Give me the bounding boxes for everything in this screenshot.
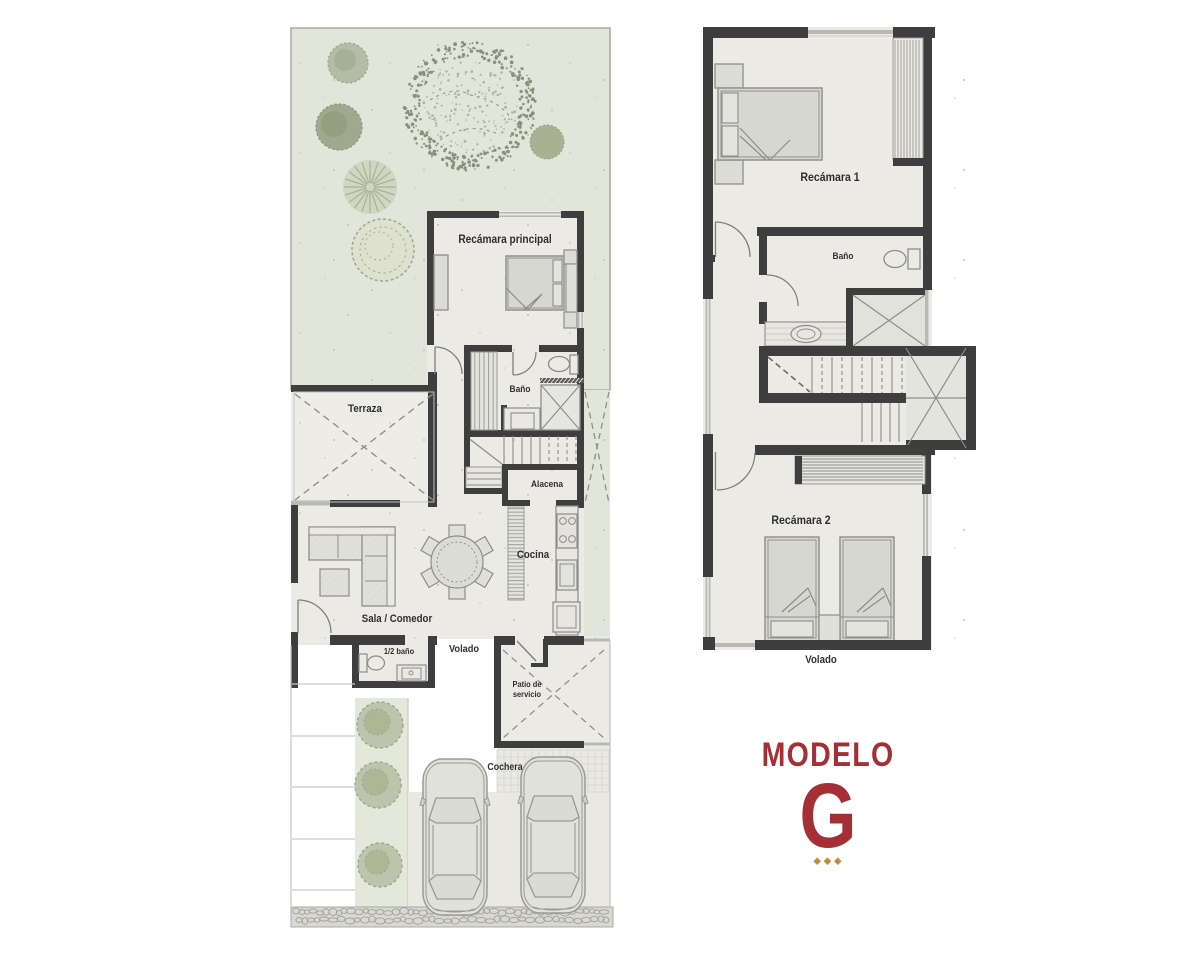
svg-text:Recámara 2: Recámara 2 — [771, 514, 830, 527]
svg-text:Recámara principal: Recámara principal — [458, 233, 551, 246]
svg-text:Baño: Baño — [833, 251, 854, 262]
svg-text:G: G — [799, 764, 856, 867]
svg-text:Patio de: Patio de — [512, 680, 542, 690]
svg-text:Cocina: Cocina — [517, 550, 549, 562]
svg-text:Sala / Comedor: Sala / Comedor — [362, 614, 432, 626]
svg-text:Volado: Volado — [449, 644, 479, 656]
svg-text:Baño: Baño — [510, 384, 531, 395]
svg-text:Recámara 1: Recámara 1 — [800, 171, 859, 184]
svg-text:Cochera: Cochera — [487, 760, 523, 772]
svg-text:Volado: Volado — [805, 655, 837, 667]
svg-text:Alacena: Alacena — [531, 479, 564, 490]
svg-text:servicio: servicio — [513, 690, 541, 700]
svg-text:1/2 baño: 1/2 baño — [384, 647, 414, 657]
svg-text:Terraza: Terraza — [348, 404, 382, 416]
